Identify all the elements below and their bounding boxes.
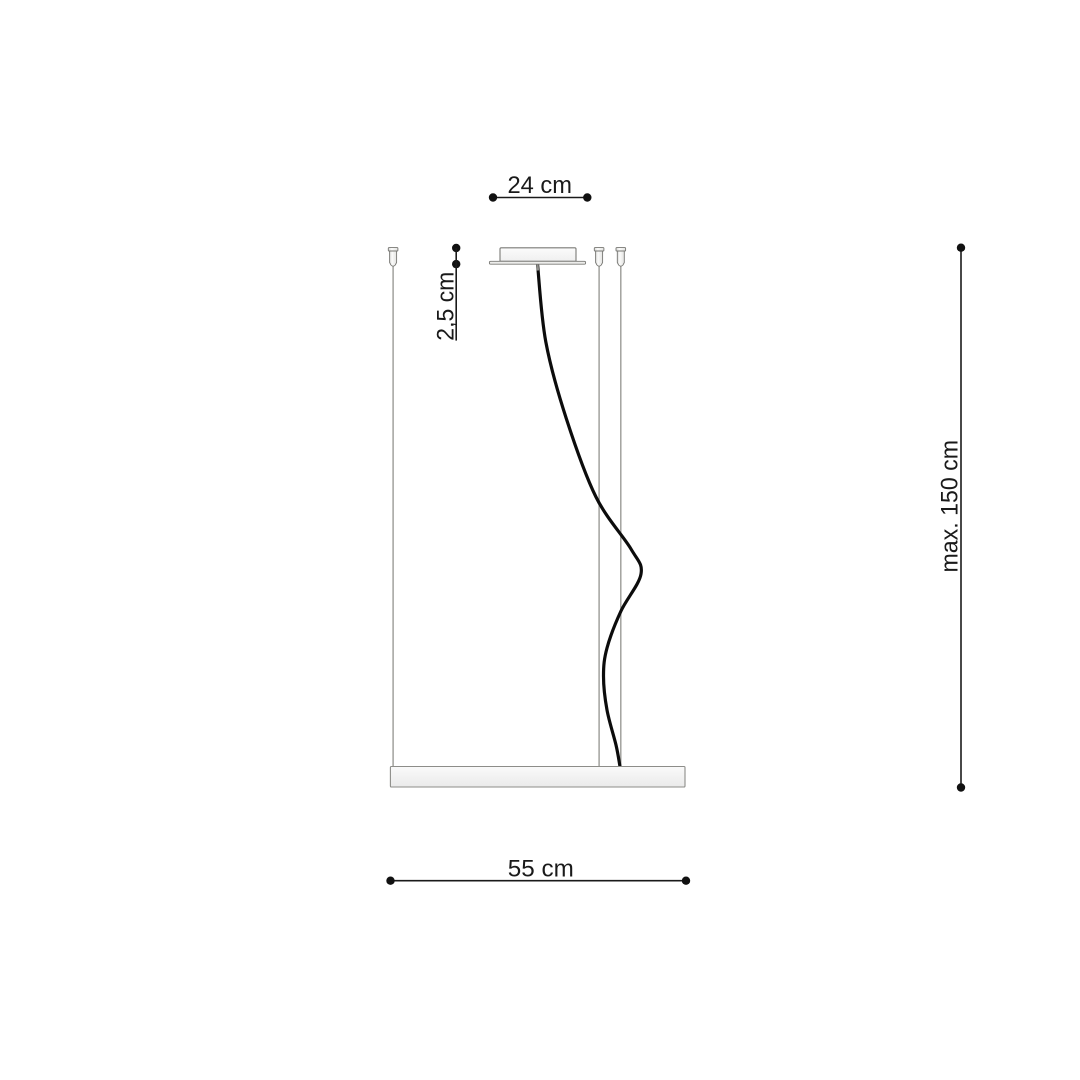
svg-text:max. 150 cm: max. 150 cm	[937, 440, 964, 573]
svg-text:55 cm: 55 cm	[508, 856, 574, 883]
svg-text:24 cm: 24 cm	[507, 172, 572, 199]
svg-text:2,5 cm: 2,5 cm	[433, 272, 460, 341]
